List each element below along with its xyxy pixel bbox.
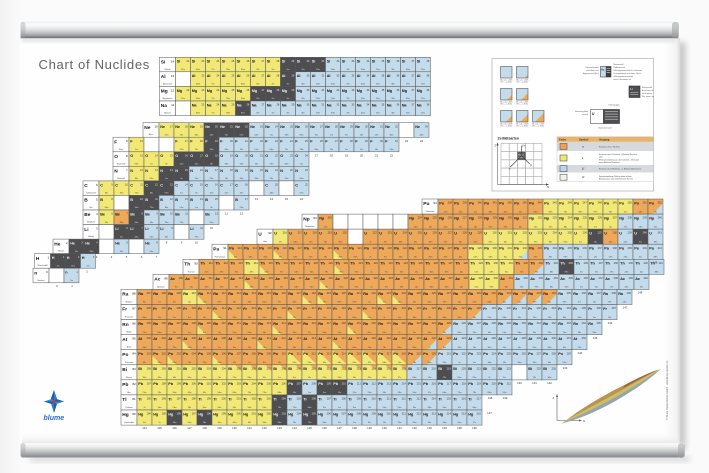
svg-text:231: 231 bbox=[509, 262, 514, 265]
svg-text:203: 203 bbox=[177, 352, 182, 355]
svg-text:(Pu ↔ a 20%): (Pu ↔ a 20%) bbox=[501, 82, 513, 84]
svg-text:Mg: Mg bbox=[177, 89, 183, 93]
svg-text:50s: 50s bbox=[270, 178, 273, 180]
svg-text:23s: 23s bbox=[503, 362, 506, 364]
svg-text:123: 123 bbox=[277, 426, 282, 430]
svg-text:64m: 64m bbox=[294, 241, 298, 243]
svg-text:29m: 29m bbox=[233, 317, 237, 319]
svg-text:Bi: Bi bbox=[303, 367, 307, 371]
svg-text:209: 209 bbox=[179, 277, 184, 280]
svg-text:220: 220 bbox=[342, 292, 347, 295]
svg-text:H: H bbox=[82, 256, 85, 260]
svg-text:228: 228 bbox=[478, 217, 483, 220]
svg-text:Ne: Ne bbox=[370, 125, 375, 129]
svg-text:Pb: Pb bbox=[138, 382, 144, 386]
svg-text:232: 232 bbox=[523, 247, 528, 250]
svg-text:Ne: Ne bbox=[250, 125, 255, 129]
svg-text:232: 232 bbox=[524, 277, 529, 280]
svg-text:226: 226 bbox=[434, 262, 439, 265]
svg-text:238: 238 bbox=[613, 232, 618, 235]
svg-text:71m: 71m bbox=[458, 392, 462, 394]
svg-text:215: 215 bbox=[417, 382, 422, 385]
svg-text:7m: 7m bbox=[57, 265, 60, 267]
svg-text:30m: 30m bbox=[390, 134, 394, 136]
svg-text:219: 219 bbox=[328, 247, 333, 250]
svg-text:Sauerstoff: Sauerstoff bbox=[117, 162, 126, 165]
svg-text:49s: 49s bbox=[233, 407, 236, 409]
svg-text:50s: 50s bbox=[225, 134, 228, 136]
svg-text:37m: 37m bbox=[445, 272, 449, 274]
svg-text:therm. Neutronen σn: therm. Neutronen σn bbox=[614, 78, 631, 81]
svg-text:Th: Th bbox=[184, 262, 190, 268]
svg-text:196: 196 bbox=[177, 413, 182, 416]
svg-text:71m: 71m bbox=[310, 272, 314, 274]
svg-text:57m: 57m bbox=[300, 193, 304, 195]
svg-text:119: 119 bbox=[217, 426, 222, 430]
svg-text:Po: Po bbox=[378, 352, 384, 356]
svg-text:Ac: Ac bbox=[170, 277, 175, 281]
svg-text:Ne: Ne bbox=[385, 125, 390, 129]
svg-text:Tl: Tl bbox=[303, 397, 306, 401]
svg-text:246: 246 bbox=[568, 202, 573, 205]
svg-text:B: B bbox=[190, 198, 193, 202]
svg-text:Hg: Hg bbox=[303, 412, 309, 416]
svg-text:212: 212 bbox=[224, 277, 229, 280]
svg-text:Fr: Fr bbox=[363, 307, 367, 311]
svg-text:247: 247 bbox=[583, 202, 588, 205]
svg-text:2m: 2m bbox=[330, 134, 333, 136]
svg-text:42m: 42m bbox=[233, 422, 237, 424]
svg-text:2m: 2m bbox=[272, 98, 275, 100]
svg-text:Ne: Ne bbox=[355, 125, 360, 129]
svg-text:209: 209 bbox=[177, 292, 182, 295]
svg-text:85m: 85m bbox=[428, 362, 432, 364]
svg-text:215: 215 bbox=[297, 322, 302, 325]
svg-text:C: C bbox=[265, 183, 268, 187]
svg-text:9m: 9m bbox=[443, 347, 446, 349]
svg-text:212: 212 bbox=[417, 413, 422, 416]
svg-text:145: 145 bbox=[593, 336, 598, 340]
svg-text:229: 229 bbox=[478, 247, 483, 250]
svg-text:211: 211 bbox=[222, 307, 227, 310]
svg-text:22m: 22m bbox=[203, 302, 207, 304]
svg-text:O: O bbox=[265, 154, 268, 158]
svg-text:Rn: Rn bbox=[588, 322, 594, 326]
svg-text:42m: 42m bbox=[218, 407, 222, 409]
svg-text:227: 227 bbox=[462, 307, 467, 310]
svg-text:77m: 77m bbox=[195, 236, 199, 238]
svg-text:237: 237 bbox=[598, 232, 603, 235]
svg-text:225: 225 bbox=[418, 232, 423, 235]
svg-text:202: 202 bbox=[267, 413, 272, 416]
svg-text:Th: Th bbox=[275, 262, 280, 266]
svg-text:57s: 57s bbox=[279, 257, 282, 259]
svg-text:Hg: Hg bbox=[122, 412, 128, 418]
svg-text:28s: 28s bbox=[188, 407, 191, 409]
svg-text:216: 216 bbox=[402, 367, 407, 370]
svg-text:Tl: Tl bbox=[348, 397, 351, 401]
svg-text:215: 215 bbox=[462, 413, 467, 416]
svg-text:85m: 85m bbox=[339, 241, 343, 243]
svg-text:94: 94 bbox=[433, 201, 437, 205]
svg-text:214: 214 bbox=[254, 262, 259, 265]
svg-text:205: 205 bbox=[237, 367, 242, 370]
svg-text:199: 199 bbox=[222, 413, 227, 416]
svg-text:10s: 10s bbox=[609, 226, 612, 228]
svg-text:24m: 24m bbox=[624, 257, 628, 259]
svg-text:Np: Np bbox=[319, 217, 325, 221]
svg-text:Np: Np bbox=[469, 217, 475, 221]
svg-text:50m: 50m bbox=[458, 422, 462, 424]
svg-text:86s: 86s bbox=[563, 317, 566, 319]
svg-text:2s: 2s bbox=[370, 257, 372, 259]
svg-text:216: 216 bbox=[283, 247, 288, 250]
svg-text:Np: Np bbox=[574, 217, 580, 221]
svg-text:22m: 22m bbox=[210, 178, 214, 180]
svg-text:91s: 91s bbox=[173, 332, 176, 334]
svg-text:Chart of Nuclides: Chart of Nuclides bbox=[39, 57, 150, 72]
svg-text:Farbe: Farbe bbox=[559, 138, 567, 142]
svg-text:225: 225 bbox=[507, 352, 512, 355]
svg-text:219: 219 bbox=[417, 352, 422, 355]
svg-text:15s: 15s bbox=[308, 377, 311, 379]
svg-text:Si: Si bbox=[387, 60, 391, 64]
svg-text:77m: 77m bbox=[203, 362, 207, 364]
svg-text:Po: Po bbox=[408, 352, 414, 356]
svg-text:78s: 78s bbox=[353, 332, 356, 334]
svg-text:Al: Al bbox=[252, 74, 256, 78]
svg-text:Ac: Ac bbox=[425, 277, 430, 281]
svg-text:15s: 15s bbox=[383, 422, 386, 424]
svg-text:Rn: Rn bbox=[483, 322, 489, 326]
svg-text:8m: 8m bbox=[368, 422, 371, 424]
svg-text:Rn: Rn bbox=[543, 322, 549, 326]
svg-text:10: 10 bbox=[154, 125, 158, 129]
svg-text:70s: 70s bbox=[293, 422, 296, 424]
svg-text:Ac: Ac bbox=[601, 68, 605, 72]
svg-text:204: 204 bbox=[297, 413, 302, 416]
svg-text:1m: 1m bbox=[338, 407, 341, 409]
svg-text:71s: 71s bbox=[300, 164, 303, 166]
svg-text:28s: 28s bbox=[158, 392, 161, 394]
svg-text:O: O bbox=[114, 154, 118, 160]
svg-text:Plutonium: Plutonium bbox=[426, 210, 435, 213]
svg-text:37m: 37m bbox=[459, 226, 463, 228]
svg-text:B: B bbox=[84, 198, 88, 204]
svg-text:230: 230 bbox=[493, 232, 498, 235]
svg-text:86s: 86s bbox=[549, 257, 552, 259]
svg-text:86s: 86s bbox=[578, 332, 581, 334]
svg-text:U: U bbox=[484, 232, 487, 236]
svg-text:228: 228 bbox=[464, 277, 469, 280]
svg-text:16m: 16m bbox=[400, 287, 404, 289]
svg-text:Wasserstoff: Wasserstoff bbox=[38, 264, 48, 267]
svg-text:208: 208 bbox=[177, 307, 182, 310]
svg-text:Mg: Mg bbox=[207, 89, 213, 93]
svg-text:222: 222 bbox=[374, 277, 379, 280]
svg-text:218: 218 bbox=[314, 262, 319, 265]
svg-text:Fr: Fr bbox=[468, 307, 472, 311]
svg-text:8m: 8m bbox=[175, 287, 178, 289]
svg-text:212: 212 bbox=[224, 262, 229, 265]
svg-text:205: 205 bbox=[177, 337, 182, 340]
svg-text:23s: 23s bbox=[473, 347, 476, 349]
svg-text:64m: 64m bbox=[323, 332, 327, 334]
svg-text:Bi: Bi bbox=[333, 367, 337, 371]
svg-text:Np: Np bbox=[499, 217, 505, 221]
svg-text:Pu: Pu bbox=[423, 201, 429, 207]
svg-text:Si: Si bbox=[161, 60, 166, 66]
svg-text:Hg: Hg bbox=[423, 412, 429, 416]
svg-text:O: O bbox=[235, 154, 238, 158]
svg-text:Si: Si bbox=[372, 60, 376, 64]
svg-text:77m: 77m bbox=[293, 407, 297, 409]
svg-text:205: 205 bbox=[147, 322, 152, 325]
svg-text:Fr: Fr bbox=[528, 307, 532, 311]
svg-text:93m: 93m bbox=[565, 272, 569, 274]
svg-text:Rn: Rn bbox=[122, 322, 128, 328]
svg-text:227: 227 bbox=[477, 322, 482, 325]
svg-text:Np: Np bbox=[529, 217, 535, 221]
svg-text:92s: 92s bbox=[256, 69, 259, 71]
svg-text:84m: 84m bbox=[143, 317, 147, 319]
svg-text:210: 210 bbox=[194, 277, 199, 280]
svg-text:225: 225 bbox=[417, 292, 422, 295]
svg-text:38m: 38m bbox=[655, 272, 659, 274]
svg-text:Th: Th bbox=[305, 262, 310, 266]
svg-text:208: 208 bbox=[252, 352, 257, 355]
svg-text:65s: 65s bbox=[505, 272, 508, 274]
svg-text:85m: 85m bbox=[340, 287, 344, 289]
svg-text:37m: 37m bbox=[473, 332, 477, 334]
svg-text:52s: 52s bbox=[519, 211, 522, 213]
svg-text:212: 212 bbox=[222, 292, 227, 295]
svg-text:142: 142 bbox=[547, 381, 552, 385]
svg-text:43m: 43m bbox=[398, 392, 402, 394]
svg-text:Ac: Ac bbox=[410, 277, 415, 281]
svg-text:Be: Be bbox=[100, 212, 105, 216]
svg-text:206: 206 bbox=[222, 352, 227, 355]
svg-text:Rn: Rn bbox=[408, 322, 414, 326]
svg-text:U: U bbox=[319, 232, 322, 236]
svg-text:23m: 23m bbox=[316, 98, 320, 100]
svg-text:51m: 51m bbox=[376, 98, 380, 100]
svg-text:217: 217 bbox=[357, 337, 362, 340]
svg-text:199: 199 bbox=[207, 398, 212, 401]
svg-text:22m: 22m bbox=[218, 317, 222, 319]
svg-text:64m: 64m bbox=[353, 347, 357, 349]
svg-text:Ne: Ne bbox=[265, 125, 270, 129]
svg-text:235: 235 bbox=[582, 307, 587, 310]
svg-text:U: U bbox=[649, 232, 652, 236]
svg-text:N: N bbox=[205, 169, 208, 173]
svg-text:205: 205 bbox=[312, 413, 317, 416]
svg-text:213: 213 bbox=[417, 398, 422, 401]
svg-text:209: 209 bbox=[357, 398, 362, 401]
svg-text:Rn: Rn bbox=[198, 322, 204, 326]
svg-text:Tl: Tl bbox=[423, 397, 426, 401]
svg-text:217: 217 bbox=[387, 352, 392, 355]
svg-text:240: 240 bbox=[658, 217, 663, 220]
svg-text:12: 12 bbox=[240, 212, 244, 216]
svg-text:22m: 22m bbox=[165, 134, 169, 136]
svg-text:208: 208 bbox=[222, 337, 227, 340]
svg-text:79m: 79m bbox=[533, 302, 537, 304]
svg-text:43m: 43m bbox=[278, 332, 282, 334]
svg-text:241: 241 bbox=[658, 247, 663, 250]
svg-text:212: 212 bbox=[372, 382, 377, 385]
svg-text:Tl: Tl bbox=[183, 397, 186, 401]
svg-text:Vorgang: Vorgang bbox=[599, 138, 610, 142]
svg-text:Bi: Bi bbox=[273, 367, 277, 371]
svg-text:72m: 72m bbox=[421, 113, 425, 115]
svg-text:51m: 51m bbox=[475, 272, 479, 274]
svg-text:229: 229 bbox=[567, 352, 572, 355]
svg-text:72m: 72m bbox=[421, 84, 425, 86]
svg-text:Th: Th bbox=[380, 262, 385, 266]
svg-text:50m: 50m bbox=[383, 377, 387, 379]
svg-text:22: 22 bbox=[390, 153, 394, 157]
svg-text:241: 241 bbox=[493, 202, 498, 205]
svg-text:214: 214 bbox=[402, 382, 407, 385]
svg-text:84m: 84m bbox=[278, 392, 282, 394]
svg-text:36s: 36s bbox=[263, 332, 266, 334]
svg-text:231: 231 bbox=[508, 232, 513, 235]
svg-text:18s: 18s bbox=[654, 211, 657, 213]
svg-text:237: 237 bbox=[599, 277, 604, 280]
svg-text:35m: 35m bbox=[203, 407, 207, 409]
svg-text:17m: 17m bbox=[444, 211, 448, 213]
svg-text:Bi: Bi bbox=[528, 367, 532, 371]
svg-text:234: 234 bbox=[554, 277, 559, 280]
svg-text:11: 11 bbox=[171, 103, 174, 107]
svg-text:206: 206 bbox=[282, 382, 287, 385]
svg-text:78m: 78m bbox=[226, 98, 230, 100]
svg-text:216: 216 bbox=[462, 398, 467, 401]
svg-text:B: B bbox=[130, 198, 133, 202]
svg-text:80: 80 bbox=[132, 412, 136, 416]
svg-text:15s: 15s bbox=[203, 317, 206, 319]
svg-text:50m: 50m bbox=[264, 257, 268, 259]
svg-text:16m: 16m bbox=[414, 226, 418, 228]
svg-text:Rn: Rn bbox=[453, 322, 459, 326]
svg-text:57m: 57m bbox=[181, 98, 185, 100]
svg-text:Pu: Pu bbox=[529, 201, 535, 205]
svg-text:Z: Z bbox=[553, 396, 555, 400]
svg-text:43m: 43m bbox=[248, 302, 252, 304]
svg-text:Fr: Fr bbox=[543, 307, 547, 311]
svg-text:20: 20 bbox=[360, 153, 364, 157]
svg-text:Tl: Tl bbox=[213, 397, 216, 401]
svg-text:Bi: Bi bbox=[183, 367, 187, 371]
svg-text:21m: 21m bbox=[143, 392, 147, 394]
svg-text:23m: 23m bbox=[316, 69, 320, 71]
svg-text:30m: 30m bbox=[429, 257, 433, 259]
svg-text:29m: 29m bbox=[248, 332, 252, 334]
svg-text:37m: 37m bbox=[443, 302, 447, 304]
svg-text:209: 209 bbox=[207, 322, 212, 325]
svg-text:58m: 58m bbox=[490, 272, 494, 274]
svg-text:219: 219 bbox=[329, 262, 334, 265]
svg-text:56m: 56m bbox=[158, 362, 162, 364]
svg-text:43m: 43m bbox=[255, 178, 259, 180]
svg-text:223: 223 bbox=[402, 307, 407, 310]
svg-text:Th: Th bbox=[515, 262, 520, 266]
svg-text:24m: 24m bbox=[625, 287, 629, 289]
svg-text:Si: Si bbox=[327, 60, 331, 64]
svg-text:Al: Al bbox=[372, 74, 376, 78]
svg-text:236: 236 bbox=[583, 232, 588, 235]
svg-text:Bi: Bi bbox=[408, 367, 412, 371]
svg-text:Bismut: Bismut bbox=[126, 376, 132, 379]
svg-text:29m: 29m bbox=[413, 422, 417, 424]
svg-text:1m: 1m bbox=[173, 317, 176, 319]
svg-text:232: 232 bbox=[522, 292, 527, 295]
svg-text:233: 233 bbox=[539, 277, 544, 280]
svg-text:29m: 29m bbox=[218, 302, 222, 304]
svg-text:251: 251 bbox=[643, 202, 648, 205]
svg-text:36s: 36s bbox=[235, 272, 238, 274]
svg-text:8m: 8m bbox=[173, 302, 176, 304]
svg-text:77m: 77m bbox=[308, 422, 312, 424]
svg-text:205: 205 bbox=[207, 352, 212, 355]
svg-text:Pu: Pu bbox=[499, 201, 505, 205]
svg-text:11: 11 bbox=[225, 212, 228, 216]
svg-text:Po: Po bbox=[513, 352, 519, 356]
svg-text:65s: 65s bbox=[505, 287, 508, 289]
svg-text:86: 86 bbox=[132, 322, 136, 326]
svg-text:N: N bbox=[295, 169, 298, 173]
svg-text:233: 233 bbox=[553, 217, 558, 220]
svg-text:57s: 57s bbox=[293, 317, 296, 319]
svg-text:17m: 17m bbox=[609, 257, 613, 259]
svg-text:Tl: Tl bbox=[438, 397, 441, 401]
svg-text:84s: 84s bbox=[150, 193, 153, 195]
svg-text:133: 133 bbox=[427, 426, 432, 430]
svg-text:Pb: Pb bbox=[168, 382, 174, 386]
svg-text:Mg: Mg bbox=[297, 89, 303, 93]
svg-text:210: 210 bbox=[192, 292, 197, 295]
svg-text:30m: 30m bbox=[488, 347, 492, 349]
svg-text:Francium: Francium bbox=[125, 316, 133, 319]
svg-text:50s: 50s bbox=[240, 149, 243, 151]
svg-text:Pb: Pb bbox=[303, 382, 309, 386]
svg-text:Rn: Rn bbox=[423, 322, 429, 326]
svg-text:2s: 2s bbox=[369, 302, 371, 304]
svg-text:Neptunium: Neptunium bbox=[305, 225, 315, 228]
svg-text:23s: 23s bbox=[429, 226, 432, 228]
svg-text:Bi: Bi bbox=[438, 367, 442, 371]
svg-text:229: 229 bbox=[478, 232, 483, 235]
svg-text:U: U bbox=[274, 232, 277, 236]
svg-text:16m: 16m bbox=[413, 317, 417, 319]
svg-text:Fr: Fr bbox=[318, 307, 322, 311]
svg-text:3m: 3m bbox=[579, 241, 582, 243]
svg-text:16s: 16s bbox=[301, 98, 304, 100]
svg-text:Ac: Ac bbox=[440, 277, 445, 281]
svg-text:230: 230 bbox=[507, 307, 512, 310]
svg-text:Po: Po bbox=[243, 352, 249, 356]
svg-text:218: 218 bbox=[372, 337, 377, 340]
svg-text:Elementsymbol: Elementsymbol bbox=[575, 110, 589, 113]
svg-text:64m: 64m bbox=[308, 317, 312, 319]
svg-text:226: 226 bbox=[448, 217, 453, 220]
svg-text:Pu: Pu bbox=[439, 201, 445, 205]
svg-text:215: 215 bbox=[387, 367, 392, 370]
svg-text:218: 218 bbox=[328, 217, 333, 220]
svg-text:225: 225 bbox=[477, 337, 482, 340]
svg-text:Emission eines Positrons + Ele: Emission eines Positrons + Elektron Neut… bbox=[599, 153, 637, 156]
